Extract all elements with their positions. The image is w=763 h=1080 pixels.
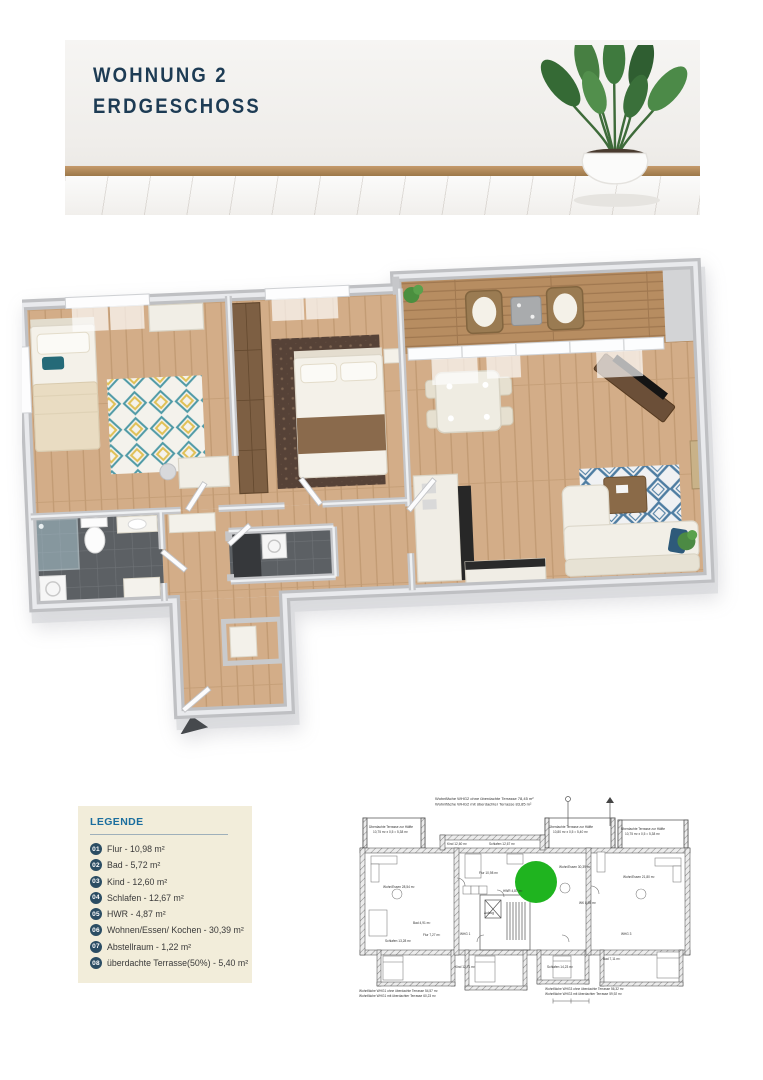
coffee-table [604,476,648,514]
siteplan-label: Bad 4,91 m² [413,921,430,925]
siteplan-label: Überdachte Terrasse zur Hälfte [549,825,593,829]
legend-item-label: Schlafen - 12,67 m² [107,893,184,903]
hwr-washer [262,534,287,559]
legend-item-number: 05 [90,908,102,920]
siteplan-label: WHG 3 [621,932,632,936]
terrace-table [511,296,542,325]
header-banner: WOHNUNG 2 ERDGESCHOSS [65,40,700,215]
siteplan-label: Schlafen 13,28 m² [385,939,411,943]
bath-shelf [124,577,161,599]
leader-arrow-icon [606,797,614,803]
legend-item-number: 07 [90,941,102,953]
legend-item-number: 03 [90,876,102,888]
legend-divider [90,834,228,835]
siteplan-top-note: Wohnfläche WHG2 mit überdachter Terrasse… [435,802,532,807]
siteplan-label: Flur 7,27 m² [423,933,440,937]
siteplan-label: Wohn/Essen 30,39 m² [559,865,590,869]
double-bed [294,347,387,478]
legend-box: LEGENDE 01Flur - 10,98 m² 02Bad - 5,72 m… [78,806,252,983]
kind-chair [160,463,177,480]
terrace-chair [465,290,503,334]
nightstand [384,349,401,364]
floorplan-3d [22,250,718,734]
legend-item-label: Wohnen/Essen/ Kochen - 30,39 m² [107,925,244,935]
siteplan-label: 10,75 m² x 0,5 = 5,38 m² [373,830,408,834]
siteplan-top-note: Wohnfläche WHG2 ohne überdachte Terrasse… [435,796,534,801]
siteplan-bottom-note: Wohnfläche WHG3 ohne überdachte Terrasse… [545,987,624,991]
dimension-tick [553,999,589,1004]
siteplan-label: Schlafen 14,23 m² [547,965,573,969]
legend-item-label: Abstellraum - 1,22 m² [107,942,191,952]
washing-machine [39,575,66,602]
siteplan-label: Kind 12,60 m² [447,842,467,846]
legend-item-number: 01 [90,843,102,855]
siteplan-label: Wohn/Essen 21,80 m² [623,875,654,879]
siteplan-label: Wohn/Essen 28,54 m² [383,885,414,889]
page-title-line1: WOHNUNG 2 [93,60,261,91]
legend-item: 07Abstellraum - 1,22 m² [90,941,242,953]
siteplan-label: Überdachte Terrasse zur Hälfte [621,827,665,831]
page-title: WOHNUNG 2 ERDGESCHOSS [93,60,261,122]
legend-item-number: 02 [90,859,102,871]
legend-item: 02Bad - 5,72 m² [90,859,242,871]
siteplan-label: 10,75 m² x 0,5 = 5,38 m² [625,832,660,836]
kind-bed [30,317,100,452]
legend-item: 08überdachte Terrasse(50%) - 5,40 m² [90,957,242,969]
terrace-chair [546,287,584,331]
legend-item: 05HWR - 4,87 m² [90,908,242,920]
legend-item-number: 08 [90,957,102,969]
legend-item: 01Flur - 10,98 m² [90,843,242,855]
siteplan-label: Schlafen 12,67 m² [489,842,515,846]
legend-item: 04Schlafen - 12,67 m² [90,892,242,904]
dimension-leaders [566,797,611,827]
potted-plant-icon [540,45,690,213]
siteplan-label: Überdachte Terrasse zur Hälfte [369,825,413,829]
siteplan-label: Flur 10,98 m² [479,871,498,875]
siteplan-label: WHG 1 [460,932,471,936]
kind-shelf [149,303,204,331]
siteplan-label: Kind 12,71 m² [455,965,475,969]
siteplan-label: 10,80 m² x 0,5 = 5,40 m² [553,830,588,834]
legend-item-label: HWR - 4,87 m² [107,909,166,919]
legend-title: LEGENDE [90,816,242,828]
legend-item: 06Wohnen/Essen/ Kochen - 30,39 m² [90,924,242,936]
legend-item-number: 06 [90,924,102,936]
legend-item-label: Kind - 12,60 m² [107,877,167,887]
closet-cabinet [230,626,257,657]
siteplan-bottom-note: Wohnfläche WHG3 mit überdachter Terrasse… [545,992,622,996]
legend-item-number: 04 [90,892,102,904]
siteplan-label: HWR 4,87 m² [503,889,522,893]
page-title-line2: ERDGESCHOSS [93,91,261,122]
legend-item-label: überdachte Terrasse(50%) - 5,40 m² [107,958,248,968]
siteplan-label: Bad 7,11 m² [603,957,620,961]
siteplan: Wohnfläche WHG2 ohne überdachte Terrasse… [357,790,693,1010]
siteplan-label: WK 8,98 m² [579,901,596,905]
siteplan-bottom-note: Wohnfläche WHG1 mit überdachter Terrasse… [359,994,436,998]
legend-item-label: Bad - 5,72 m² [107,860,160,870]
brochure-page: WOHNUNG 2 ERDGESCHOSS [0,0,763,1080]
apartment-location-marker [515,861,557,903]
stair-core [480,895,530,950]
legend-list: 01Flur - 10,98 m² 02Bad - 5,72 m² 03Kind… [90,843,242,969]
siteplan-label: Aufzug [484,911,494,915]
hall-sideboard [169,513,216,533]
siteplan-bottom-note: Wohnfläche WHG1 ohne überdachte Terrasse… [359,989,438,993]
legend-item-label: Flur - 10,98 m² [107,844,165,854]
legend-item: 03Kind - 12,60 m² [90,876,242,888]
